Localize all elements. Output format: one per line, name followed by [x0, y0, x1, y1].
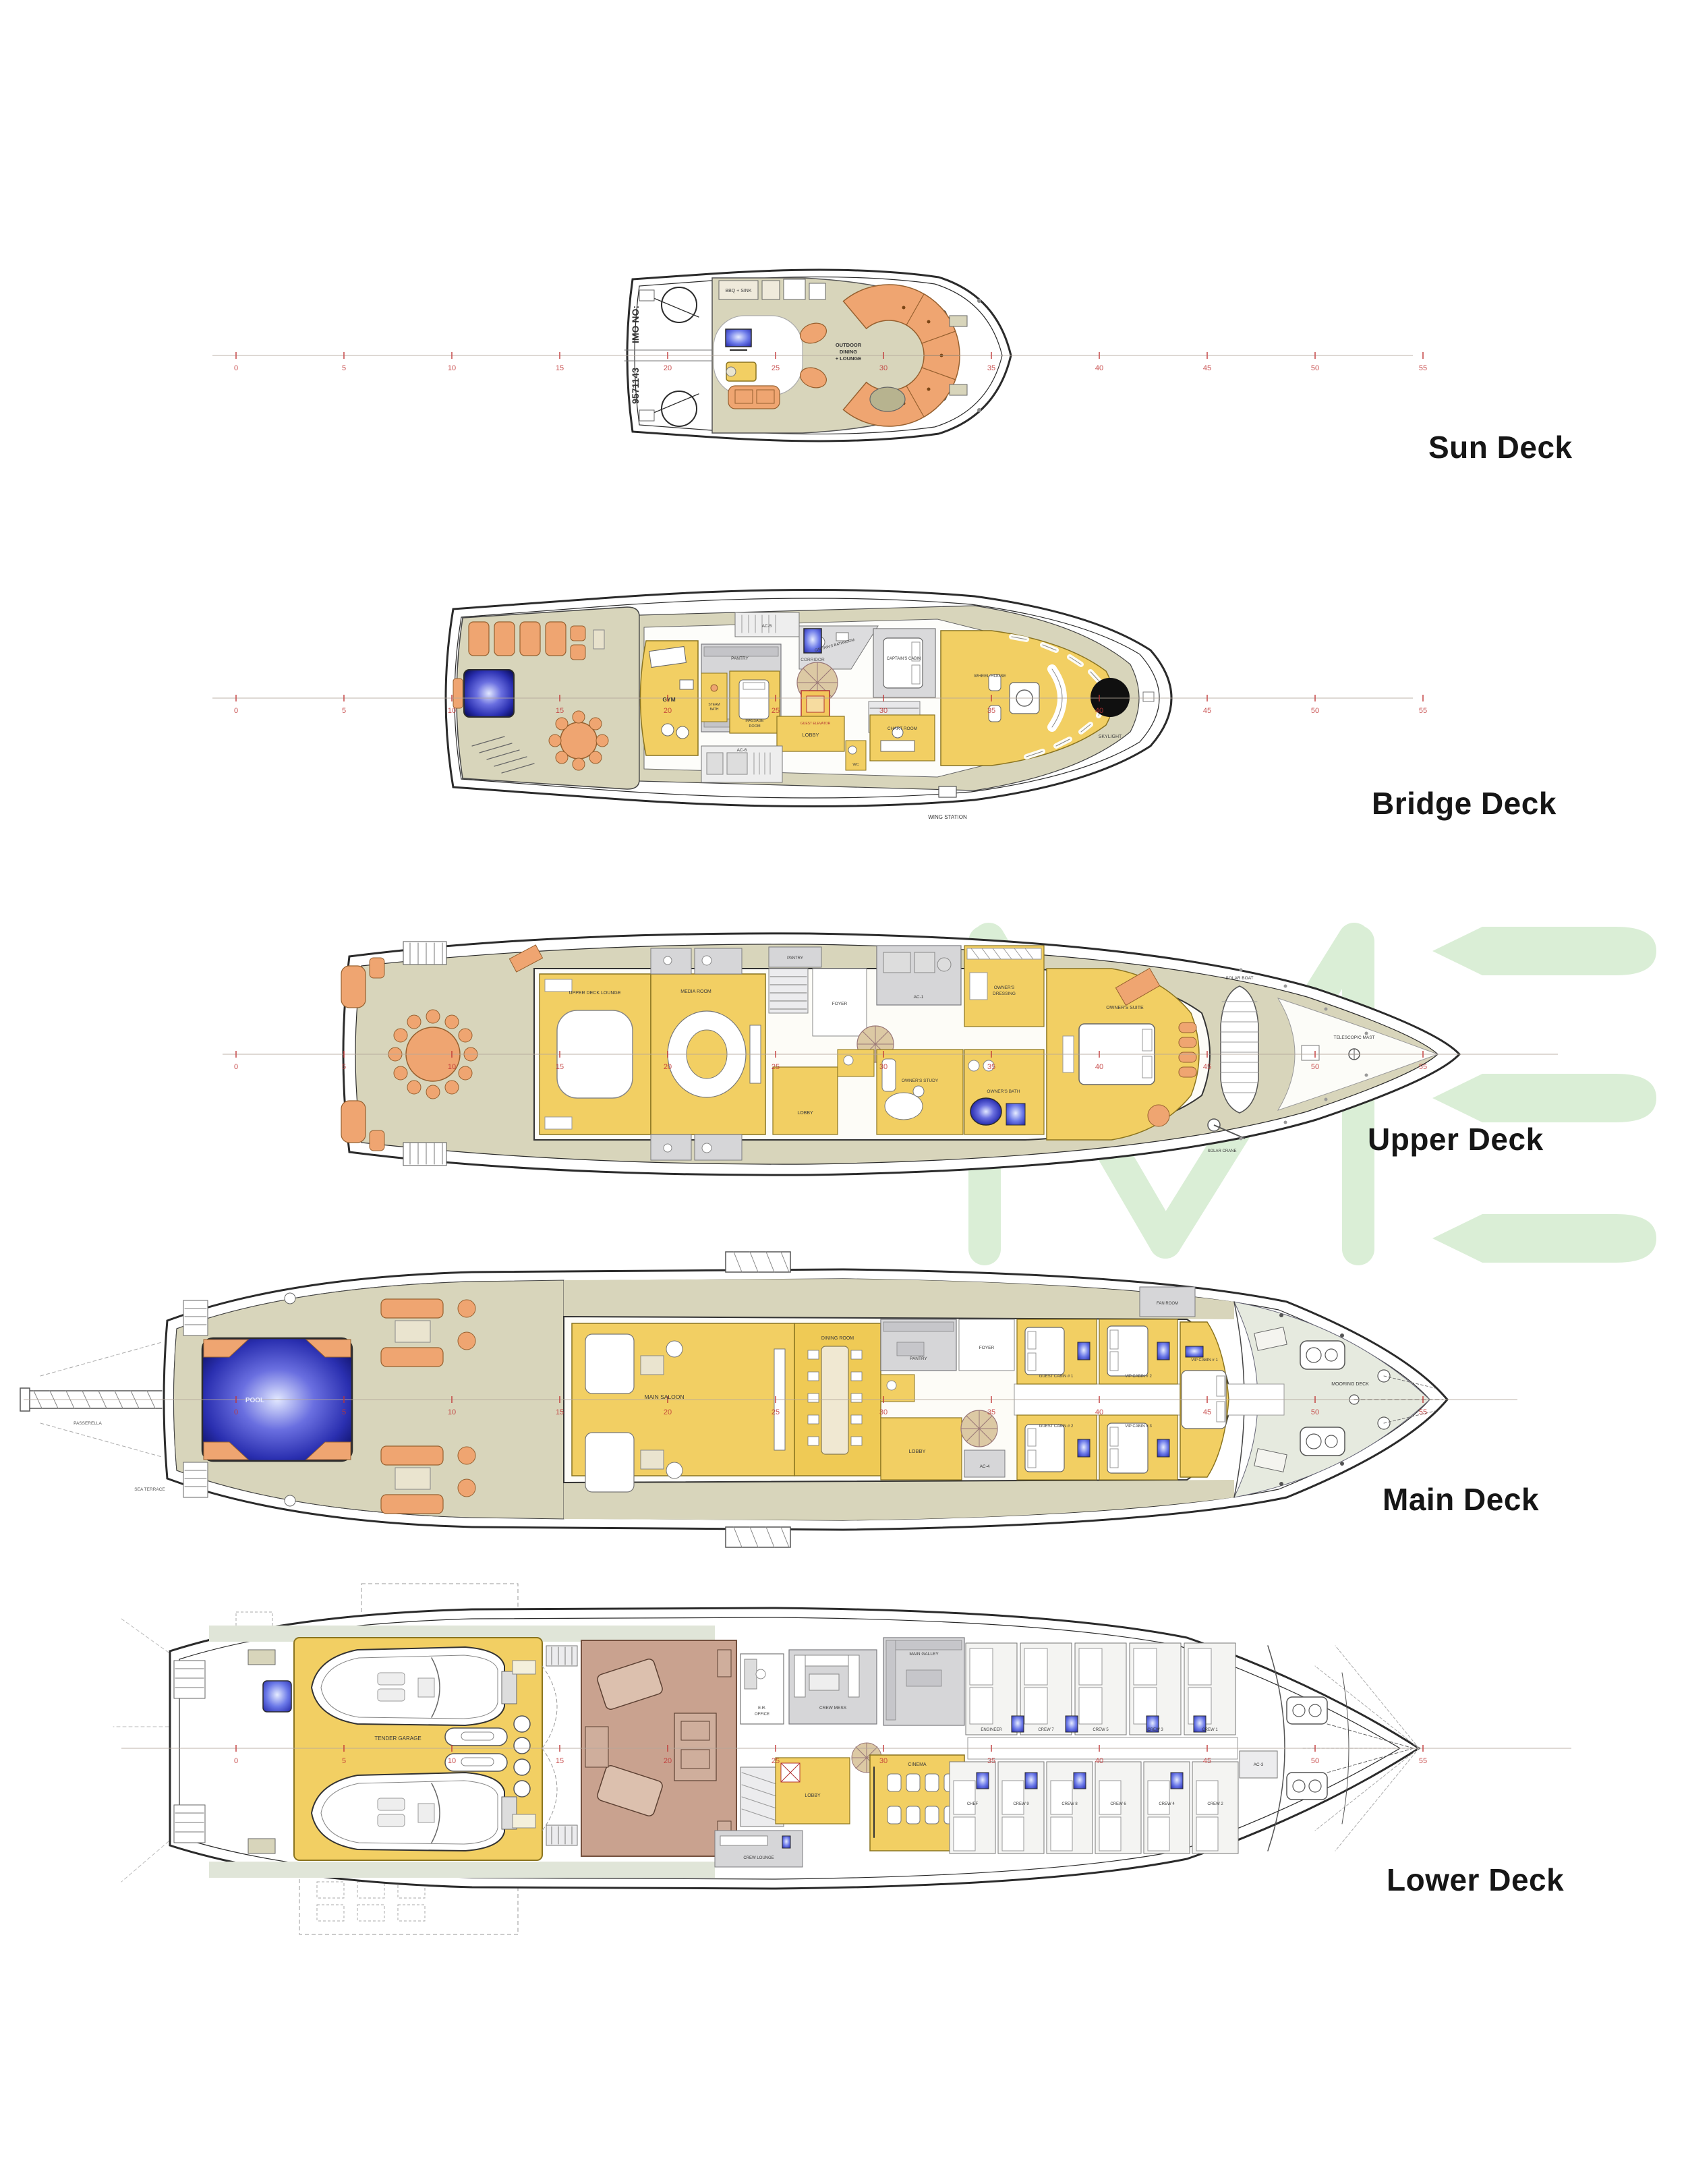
plan-label: FOYER [832, 1002, 848, 1006]
plan-shape [407, 1015, 421, 1029]
plan-label: STEAM [708, 703, 720, 707]
sun-deck-plan: 0510152025303540455055IMO NO:9571143BBQ … [212, 270, 1427, 441]
table [1148, 1105, 1169, 1126]
plan-label: CREW 7 [1038, 1728, 1054, 1732]
watermark-letter [1432, 927, 1656, 975]
wing-station [939, 786, 956, 797]
plan-shape [977, 408, 981, 412]
station-number: 55 [1419, 1408, 1427, 1416]
solar-boat [1221, 986, 1258, 1113]
plan-shape [458, 1479, 475, 1497]
bridge-deck-plan: 0510152025303540455055GYMPANTRYAC-5STEAM… [212, 590, 1427, 820]
station-number: 25 [772, 1063, 780, 1071]
station-number: 5 [342, 1757, 346, 1765]
plan-shape [1179, 1067, 1196, 1077]
transom-stairs [174, 1805, 205, 1843]
plan-shape [809, 1674, 839, 1690]
shower [1006, 1103, 1025, 1125]
plan-shape [545, 979, 572, 992]
plan-shape [851, 1437, 862, 1445]
plan-shape [711, 685, 718, 691]
plan-label: UPPER DECK LOUNGE [569, 991, 620, 996]
station-number: 15 [556, 1757, 564, 1765]
plan-shape [426, 1085, 440, 1099]
tv [1066, 1716, 1078, 1732]
bath-tub [970, 1098, 1001, 1125]
plan-label: 9571143 [630, 368, 641, 404]
plan-label: SKYLIGHT [1099, 735, 1122, 739]
plan-shape [808, 1415, 819, 1424]
tv [1078, 1342, 1090, 1360]
plan-label: MOORING DECK [1331, 1382, 1369, 1387]
station-number: 10 [448, 364, 456, 372]
sun-lounger [520, 622, 540, 656]
buoy [514, 1759, 530, 1775]
station-number: 5 [342, 1408, 346, 1416]
plan-shape [906, 1670, 941, 1686]
plan-shape [317, 1882, 344, 1898]
plan-shape [950, 384, 967, 395]
plan-shape [209, 1862, 715, 1878]
plan-label: GUEST CABIN # 2 [1039, 1425, 1074, 1429]
station-number: 35 [987, 1757, 995, 1765]
station-number: 40 [1095, 1757, 1103, 1765]
stairs [183, 1300, 208, 1335]
plan-label: TELESCOPIC MAST [1333, 1035, 1374, 1040]
ac-room [964, 1450, 1005, 1477]
plan-label: LOBBY [805, 1793, 821, 1798]
chart-room [870, 715, 935, 761]
plan-shape [357, 1905, 384, 1921]
plan-label: PASSERELLA [74, 1421, 102, 1426]
plan-shape [1179, 1037, 1196, 1047]
plan-shape [1340, 1462, 1344, 1466]
plan-shape [445, 1015, 459, 1029]
watermark-letter [1432, 1074, 1656, 1122]
plan-label: OUTDOOR [836, 342, 862, 348]
plan-shape [727, 753, 747, 774]
plan-shape [545, 1117, 572, 1129]
plan-label: VIP CABIN # 1 [1191, 1358, 1218, 1362]
plan-label: AC-6 [737, 748, 747, 753]
stairs [183, 1462, 208, 1497]
plan-label: BATH [710, 708, 719, 712]
station-number: 50 [1311, 1757, 1319, 1765]
plan-shape [851, 1415, 862, 1424]
plan-label: WING STATION [928, 814, 967, 820]
plan-shape [426, 1010, 440, 1023]
plan-shape [851, 1372, 862, 1381]
station-number: 55 [1419, 707, 1427, 715]
station-number: 40 [1095, 364, 1103, 372]
station-number: 40 [1095, 1063, 1103, 1071]
plan-label: PANTRY [731, 656, 749, 661]
plan-shape [927, 320, 931, 324]
plan-label: ROOM [749, 724, 761, 728]
sun-lounger [546, 622, 566, 656]
plan-shape [970, 973, 987, 1000]
plan-shape [883, 1322, 954, 1331]
plan-label: SEA TERRACE [134, 1487, 165, 1492]
plan-shape [458, 1447, 475, 1464]
plan-shape [596, 735, 608, 747]
station-number: 10 [448, 1063, 456, 1071]
plan-shape [571, 645, 585, 660]
station-number: 30 [879, 1408, 888, 1416]
plan-label: OWNER'S STUDY [902, 1079, 939, 1083]
lobby [773, 1067, 838, 1134]
plan-shape [954, 1817, 975, 1851]
plan-label: OWNER'S BATH [987, 1089, 1020, 1094]
plan-label: MEDIA ROOM [680, 989, 711, 994]
plan-shape [886, 1640, 896, 1720]
plan-shape [784, 279, 805, 299]
plan-shape [809, 283, 825, 299]
plan-shape [1284, 1121, 1287, 1124]
plan-label: FOYER [979, 1346, 995, 1350]
tv [1078, 1439, 1090, 1457]
plan-shape [666, 1341, 682, 1357]
plan-shape [1179, 1052, 1196, 1062]
plan-shape [674, 1713, 716, 1781]
plan-shape [897, 1342, 924, 1356]
plan-shape [680, 680, 693, 689]
plan-shape [808, 1393, 819, 1402]
plan-shape [556, 751, 568, 764]
plan-label: E.R. [758, 1706, 766, 1711]
plan-shape [913, 1086, 924, 1097]
plan-shape [1143, 692, 1154, 701]
plan-shape [756, 1669, 765, 1679]
plan-shape [1002, 1817, 1024, 1851]
plan-label: CREW 1 [1202, 1728, 1218, 1732]
bed [1025, 1425, 1064, 1472]
plan-shape [1188, 1648, 1211, 1685]
station-number: 10 [448, 1757, 456, 1765]
station-number: 20 [664, 1757, 672, 1765]
plan-shape [1302, 1045, 1319, 1060]
plan-shape [745, 1659, 757, 1689]
tv [1025, 1773, 1037, 1789]
station-number: 25 [772, 1408, 780, 1416]
plan-label: TENDER GARAGE [374, 1735, 421, 1742]
plan-label: + LOUNGE [836, 355, 862, 362]
plan-shape [395, 1321, 430, 1342]
plan-shape [593, 630, 604, 649]
dining-table [821, 1346, 848, 1454]
station-number: 25 [772, 364, 780, 372]
station-number: 5 [342, 1063, 346, 1071]
plan-shape [589, 718, 602, 730]
plan-shape [762, 281, 780, 299]
plan-shape [676, 726, 689, 739]
station-number: 10 [448, 707, 456, 715]
plan-shape [888, 1806, 901, 1824]
plan-shape [902, 306, 906, 310]
stairs [546, 1646, 577, 1666]
plan-shape [1196, 1781, 1218, 1814]
plan-label: FAN ROOM [1157, 1302, 1178, 1306]
plan-shape [502, 1671, 517, 1704]
plan-label: CINEMA [908, 1762, 927, 1767]
sofa [728, 386, 780, 409]
plan-shape [695, 1134, 742, 1160]
plan-shape [887, 1381, 896, 1390]
plan-shape [1325, 1008, 1328, 1011]
winch [1300, 1427, 1345, 1456]
station-number: 20 [664, 1063, 672, 1071]
station-number: 30 [879, 707, 888, 715]
plan-shape [794, 1655, 805, 1697]
plan-shape [589, 751, 602, 764]
plan-shape [458, 1300, 475, 1317]
plan-shape [888, 1774, 901, 1791]
station-number: 55 [1419, 1757, 1427, 1765]
plan-label: SOLAR BOAT [1225, 976, 1253, 981]
plan-shape [808, 1350, 819, 1359]
plan-label: MASSAGE [745, 719, 764, 723]
radar-dome [662, 391, 697, 426]
plan-shape [407, 1081, 421, 1094]
plan-shape [458, 1332, 475, 1350]
sun-deck-label: Sun Deck [1428, 429, 1573, 465]
jacuzzi [464, 670, 514, 717]
station-number: 50 [1311, 364, 1319, 372]
station-number: 0 [234, 1408, 238, 1416]
plan-label: BBQ + SINK [725, 289, 751, 293]
plan-shape [1279, 1313, 1283, 1317]
tv [1074, 1773, 1086, 1789]
plan-label: IMO NO: [630, 306, 641, 343]
plan-label: AC-1 [914, 995, 924, 1000]
plan-shape [285, 1293, 295, 1304]
station-number: 15 [556, 1408, 564, 1416]
bed [1107, 1326, 1148, 1376]
plan-shape [418, 1678, 434, 1697]
station-number: 0 [234, 1757, 238, 1765]
plan-label: POOL [245, 1397, 264, 1404]
plan-shape [573, 711, 585, 723]
plan-shape [285, 1495, 295, 1506]
plan-label: OWNER'S [994, 985, 1015, 990]
plan-shape [1134, 1648, 1157, 1685]
plan-shape [906, 1806, 920, 1824]
station-number: 15 [556, 1063, 564, 1071]
plan-label: OFFICE [755, 1713, 769, 1717]
station-number: 25 [772, 1757, 780, 1765]
station-number: 15 [556, 364, 564, 372]
station-number: 25 [772, 707, 780, 715]
plan-shape [378, 1689, 405, 1701]
plan-shape [1240, 969, 1243, 972]
tv [1186, 1346, 1203, 1357]
plan-shape [851, 1393, 862, 1402]
station-number: 5 [342, 364, 346, 372]
station-number: 0 [234, 364, 238, 372]
plan-shape [666, 1462, 682, 1478]
tv [977, 1773, 989, 1789]
foyer [959, 1319, 1014, 1371]
plan-shape [1240, 1137, 1243, 1141]
plan-shape [851, 1350, 862, 1359]
plan-shape [970, 1688, 993, 1724]
plan-shape [662, 724, 674, 736]
plan-shape [1099, 1781, 1121, 1814]
station-number: 15 [556, 707, 564, 715]
plan-shape [704, 647, 778, 656]
plan-shape [1024, 1688, 1047, 1724]
plan-shape [881, 741, 914, 751]
locker [263, 1681, 291, 1712]
day-head [838, 1050, 874, 1076]
table [870, 387, 905, 411]
stairs [546, 1825, 577, 1845]
plan-label: LOBBY [802, 732, 819, 738]
plan-shape [395, 1468, 430, 1489]
plan-label: VIP CABIN # 3 [1125, 1425, 1152, 1429]
tv [1171, 1773, 1183, 1789]
plan-shape [641, 1356, 664, 1375]
plan-shape [1024, 1648, 1047, 1685]
plan-label: OWNER'S SUITE [1106, 1006, 1144, 1010]
sofa [381, 1299, 443, 1318]
plan-label: CREW 2 [1207, 1802, 1223, 1806]
plan-shape [1079, 1688, 1102, 1724]
plan-label: CAPTAIN'S CABIN [887, 657, 921, 661]
plan-shape [513, 1814, 535, 1828]
station-number: 35 [987, 1063, 995, 1071]
plan-label: CREW 8 [1062, 1802, 1078, 1806]
plan-label: CREW MESS [819, 1706, 847, 1711]
plan-shape [398, 1905, 425, 1921]
plan-shape [1179, 1023, 1196, 1033]
massage-bed [739, 680, 769, 719]
station-number: 35 [987, 1408, 995, 1416]
station-number: 45 [1203, 1757, 1211, 1765]
plan-shape [950, 316, 967, 326]
station-number: 50 [1311, 707, 1319, 715]
stern-bench [341, 966, 366, 1008]
tender [312, 1647, 504, 1725]
plan-label: AC-5 [762, 624, 772, 629]
plan-shape [925, 1774, 939, 1791]
station-number: 40 [1095, 1408, 1103, 1416]
plan-shape [549, 735, 561, 747]
station-number: 40 [1095, 707, 1103, 715]
buoy [514, 1781, 530, 1797]
plan-shape [1051, 1781, 1072, 1814]
plan-shape [664, 956, 672, 965]
plan-shape [664, 1144, 672, 1152]
plan-shape [641, 1450, 664, 1469]
plan-shape [1365, 1074, 1368, 1077]
plan-shape [925, 1806, 939, 1824]
sofa [381, 1446, 443, 1465]
day-head [881, 1375, 914, 1402]
plan-shape [378, 1673, 405, 1685]
plan-shape [639, 410, 654, 421]
plan-label: CREW LOUNGE [743, 1856, 774, 1860]
plan-label: GYM [662, 696, 675, 703]
plan-shape [1051, 1817, 1072, 1851]
plan-shape [1340, 1333, 1344, 1338]
plan-label: LOBBY [797, 1111, 813, 1116]
station-number: 10 [448, 1408, 456, 1416]
sofa [381, 1348, 443, 1367]
station-number: 45 [1203, 707, 1211, 715]
radar-dome [662, 287, 697, 322]
plan-label: VIP CABIN # 2 [1125, 1375, 1152, 1379]
station-number: 0 [234, 1063, 238, 1071]
plan-label: WC [852, 763, 859, 767]
plan-label: CHEF [967, 1802, 979, 1806]
plan-label: CHART ROOM [888, 726, 917, 731]
tv [1012, 1716, 1024, 1732]
station-number: 0 [234, 707, 238, 715]
main-deck-plan: 0510152025303540455055POOLMAIN SALOONDIN… [20, 1252, 1517, 1547]
plan-shape [1196, 1817, 1218, 1851]
plan-label: DINING [840, 349, 857, 355]
plan-shape [808, 1372, 819, 1381]
plan-shape [968, 1060, 979, 1071]
sun-lounger [494, 622, 515, 656]
plan-label: DRESSING [993, 992, 1016, 996]
plan-label: AC-4 [980, 1464, 990, 1469]
plan-shape [378, 1798, 405, 1810]
lower-deck-plan: 0510152025303540455055TENDER GARAGEE.R.O… [113, 1584, 1571, 1934]
side-balcony [726, 1527, 790, 1547]
plan-shape [937, 958, 951, 971]
plan-shape [718, 1650, 731, 1677]
tender [312, 1773, 504, 1851]
sun-lounger [469, 622, 489, 656]
stern-bench [341, 1101, 366, 1143]
station-number: 50 [1311, 1408, 1319, 1416]
buoy [514, 1716, 530, 1732]
bed [1107, 1423, 1148, 1473]
tv [1157, 1342, 1169, 1360]
plan-shape [113, 1619, 169, 1882]
plan-shape [726, 367, 736, 376]
plan-shape [844, 1056, 853, 1065]
plan-shape [453, 679, 463, 708]
plan-label: CREW 9 [1013, 1802, 1029, 1806]
plan-shape [1148, 1781, 1169, 1814]
plan-shape [954, 1781, 975, 1814]
side-balcony [726, 1252, 790, 1272]
sofa [585, 1433, 634, 1492]
station-number: 55 [1419, 364, 1427, 372]
deck-plans-page: 0510152025303540455055IMO NO:9571143BBQ … [0, 0, 1686, 2184]
plan-shape [1148, 1817, 1169, 1851]
station-number: 30 [879, 1757, 888, 1765]
tv [782, 1836, 790, 1848]
tv [726, 329, 751, 347]
jet-ski [445, 1728, 507, 1746]
station-number: 20 [664, 707, 672, 715]
station-number: 30 [879, 364, 888, 372]
plan-label: MAIN SALOON [644, 1393, 684, 1400]
plan-shape [836, 633, 848, 641]
plan-label: MAIN GALLEY [909, 1652, 939, 1657]
plan-shape [702, 1143, 711, 1153]
buoy [514, 1737, 530, 1754]
plan-shape [556, 718, 568, 730]
steam-bath [701, 673, 727, 722]
plan-shape [1325, 1098, 1328, 1101]
plan-shape [808, 1437, 819, 1445]
plan-shape [248, 1839, 275, 1853]
